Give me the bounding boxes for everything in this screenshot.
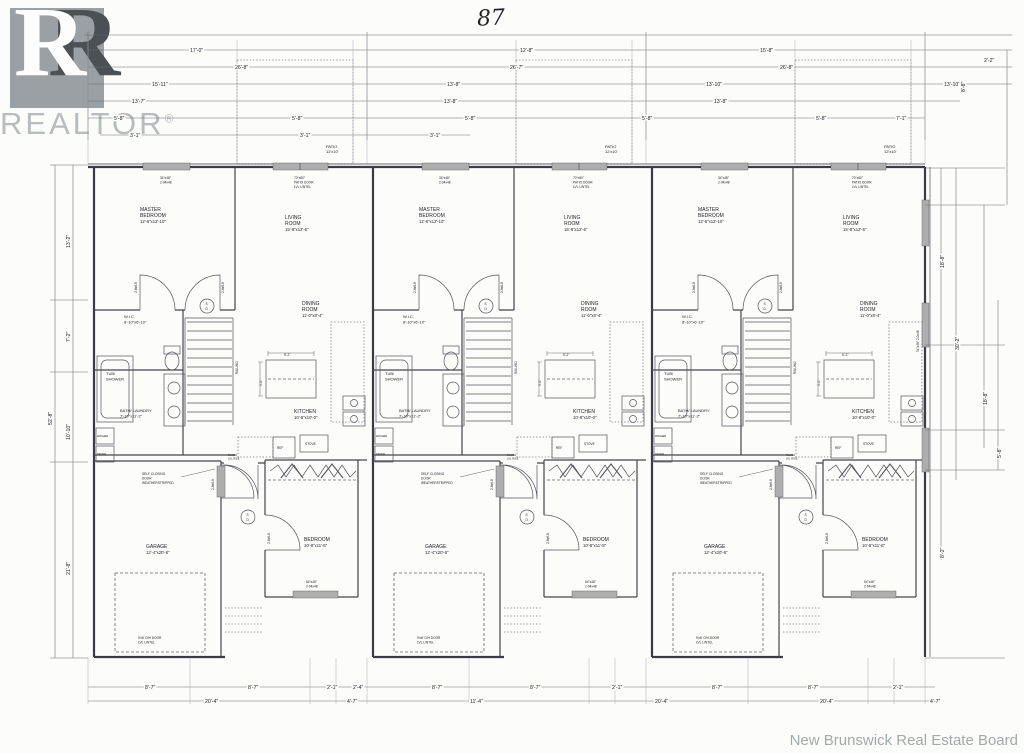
svg-text:3'-1": 3'-1" xyxy=(430,133,440,139)
svg-text:13'-7": 13'-7" xyxy=(132,99,145,105)
svg-text:26'-7": 26'-7" xyxy=(510,65,523,71)
dimension-labels-top: 17'-0" 12'-8" 15'-8" 2'-2" 26'-8" 26'-7"… xyxy=(114,48,994,139)
side-window xyxy=(922,428,929,472)
svg-text:15'-8": 15'-8" xyxy=(760,48,773,54)
extension-lines xyxy=(88,40,925,704)
svg-text:2'-1": 2'-1" xyxy=(893,685,903,691)
svg-text:5'-8": 5'-8" xyxy=(465,116,475,122)
svg-text:8'-7": 8'-7" xyxy=(808,685,818,691)
svg-text:13'-2": 13'-2" xyxy=(66,235,72,248)
svg-text:8'-2": 8'-2" xyxy=(940,548,946,558)
svg-text:26'-8": 26'-8" xyxy=(780,65,793,71)
svg-text:5'-8": 5'-8" xyxy=(114,116,124,122)
svg-text:5'-8": 5'-8" xyxy=(816,116,826,122)
svg-text:12'-8": 12'-8" xyxy=(520,48,533,54)
dining-side-window xyxy=(922,303,929,347)
svg-text:8'-7": 8'-7" xyxy=(530,685,540,691)
svg-text:2'-2": 2'-2" xyxy=(984,58,994,64)
svg-text:4'-7": 4'-7" xyxy=(347,699,357,705)
unit-1 xyxy=(88,60,367,657)
svg-text:52'-8": 52'-8" xyxy=(48,412,54,425)
living-side-window xyxy=(922,200,929,246)
dimension-lines xyxy=(50,32,1012,701)
svg-text:17'-0": 17'-0" xyxy=(190,48,203,54)
sheet-number: 87 xyxy=(476,5,505,31)
svg-text:3'-1": 3'-1" xyxy=(130,133,140,139)
svg-text:2'-4": 2'-4" xyxy=(353,685,363,691)
unit-3 xyxy=(646,60,925,657)
svg-text:30'-2": 30'-2" xyxy=(955,337,961,350)
unit-2 xyxy=(367,60,646,657)
svg-text:2'-1": 2'-1" xyxy=(612,685,622,691)
floor-plan-drawing: PATIO 12'x10' RAILING WASHER DRYER xyxy=(0,0,1024,753)
dimension-labels-sides: 52'-8" 13'-2" 7'-2" 10'-10" 21'-8" 8'-8"… xyxy=(48,82,1003,575)
svg-text:8'-8": 8'-8" xyxy=(961,82,967,92)
svg-text:15'-11": 15'-11" xyxy=(152,82,168,88)
svg-text:11'-4": 11'-4" xyxy=(470,699,483,705)
dimension-labels-bottom: 8'-7" 8'-7" 2'-1" 2'-4" 8'-7" 8'-7" 2'-1… xyxy=(145,685,940,705)
svg-text:20'-4": 20'-4" xyxy=(205,699,218,705)
svg-text:3'-1": 3'-1" xyxy=(300,133,310,139)
svg-text:18'-8": 18'-8" xyxy=(940,255,946,268)
side-window-spec: 34"x48" 2-0x48 xyxy=(916,330,920,352)
svg-text:2'-1": 2'-1" xyxy=(327,685,337,691)
svg-text:13'-8": 13'-8" xyxy=(714,99,727,105)
svg-text:5'-8": 5'-8" xyxy=(997,448,1003,458)
svg-text:8'-7": 8'-7" xyxy=(432,685,442,691)
svg-text:26'-8": 26'-8" xyxy=(235,65,248,71)
svg-text:8'-7": 8'-7" xyxy=(712,685,722,691)
attribution-text: New Brunswick Real Estate Board xyxy=(790,732,1018,749)
svg-text:18'-8": 18'-8" xyxy=(983,392,989,405)
svg-text:13'-8": 13'-8" xyxy=(444,99,457,105)
floor-plan-sheet: { "watermark": { "brand": "REALTOR", "re… xyxy=(0,0,1024,753)
svg-text:21'-8": 21'-8" xyxy=(66,562,72,575)
svg-text:13'-10": 13'-10" xyxy=(706,82,722,88)
svg-text:7'-1": 7'-1" xyxy=(896,116,906,122)
svg-text:5'-8": 5'-8" xyxy=(642,116,652,122)
svg-text:10'-10": 10'-10" xyxy=(66,424,72,440)
svg-text:13'-10": 13'-10" xyxy=(944,82,960,88)
svg-text:20'-4": 20'-4" xyxy=(820,699,833,705)
svg-text:8'-7": 8'-7" xyxy=(145,685,155,691)
svg-text:13'-8": 13'-8" xyxy=(447,82,460,88)
svg-text:20'-4": 20'-4" xyxy=(655,699,668,705)
svg-text:4'-7": 4'-7" xyxy=(930,699,940,705)
svg-text:7'-2": 7'-2" xyxy=(66,332,72,342)
svg-text:8'-7": 8'-7" xyxy=(248,685,258,691)
svg-text:5'-8": 5'-8" xyxy=(292,116,302,122)
